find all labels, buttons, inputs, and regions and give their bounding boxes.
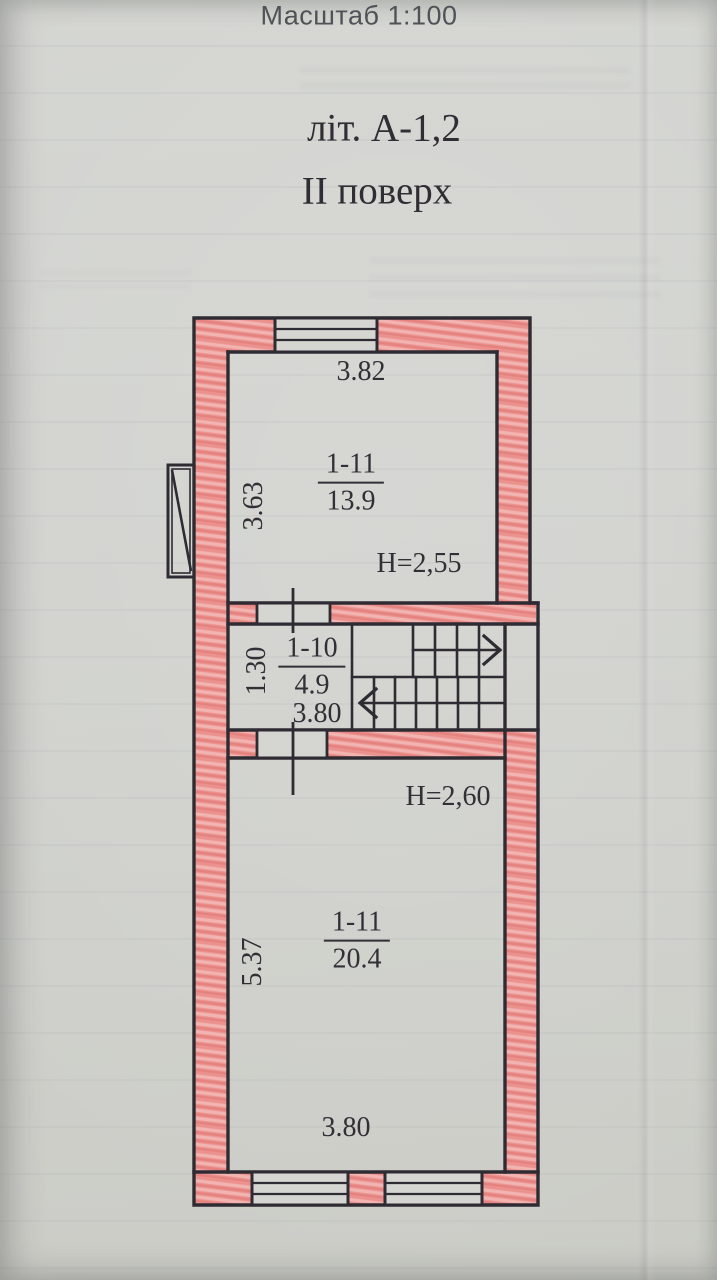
lower-room-number: 1-11 bbox=[324, 907, 390, 942]
hall-number-area: 1-10 4.9 bbox=[278, 633, 345, 702]
hall-width-dim: 3.80 bbox=[293, 700, 342, 728]
floor-title: ІІ поверх bbox=[302, 172, 453, 211]
scale-label: Масштаб 1:100 bbox=[260, 3, 457, 30]
upper-room-area: 13.9 bbox=[326, 484, 375, 517]
hall-number: 1-10 bbox=[278, 633, 345, 668]
hall-depth-dim: 1.30 bbox=[243, 647, 271, 696]
lower-room-ceiling-height: H=2,60 bbox=[405, 783, 490, 811]
upper-room-depth-dim: 3.63 bbox=[240, 482, 268, 531]
scanned-floor-plan-page: Масштаб 1:100 літ. А-1,2 ІІ поверх 3.82 … bbox=[0, 0, 717, 1280]
building-letter-title: літ. А-1,2 bbox=[307, 109, 461, 148]
upper-room-number-area: 1-11 13.9 bbox=[318, 449, 384, 518]
bottom-wall-window-right bbox=[385, 1172, 482, 1205]
lower-room-width-dim: 3.80 bbox=[322, 1114, 371, 1142]
bottom-wall-window-left bbox=[252, 1172, 348, 1205]
lower-room-number-area: 1-11 20.4 bbox=[324, 907, 390, 976]
balcony-symbol bbox=[168, 465, 194, 577]
upper-room-ceiling-height: H=2,55 bbox=[376, 550, 461, 578]
lower-room-area: 20.4 bbox=[332, 942, 381, 975]
hall-area: 4.9 bbox=[294, 668, 329, 701]
lower-room-depth-dim: 5.37 bbox=[239, 938, 267, 987]
upper-room-width-dim: 3.82 bbox=[337, 358, 386, 386]
upper-room-number: 1-11 bbox=[318, 449, 384, 484]
top-wall-window bbox=[275, 318, 377, 352]
staircase bbox=[352, 624, 505, 730]
